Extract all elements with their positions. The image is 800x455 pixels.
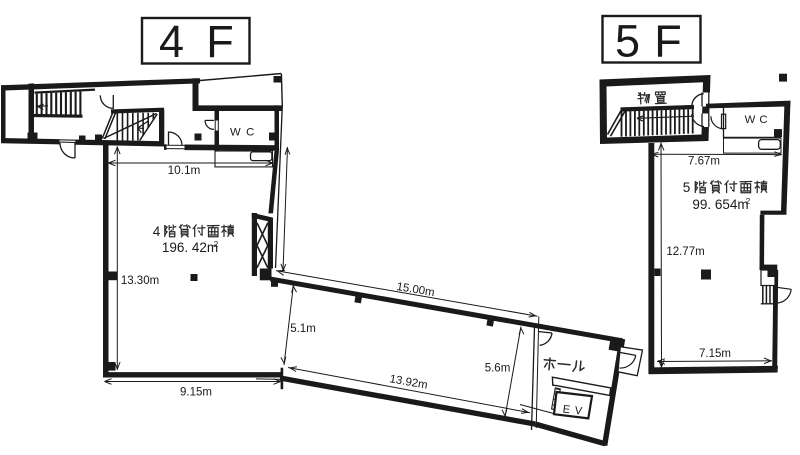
svg-text:F: F bbox=[206, 16, 234, 67]
svg-text:196. 42m: 196. 42m bbox=[162, 240, 218, 255]
svg-text:4: 4 bbox=[159, 16, 184, 67]
svg-text:4: 4 bbox=[153, 224, 161, 239]
svg-text:C: C bbox=[759, 114, 767, 126]
svg-text:2: 2 bbox=[214, 240, 219, 249]
svg-text:9.15m: 9.15m bbox=[180, 387, 212, 399]
svg-text:5.1m: 5.1m bbox=[290, 323, 316, 335]
svg-text:7.67m: 7.67m bbox=[688, 155, 720, 167]
svg-text:99. 654m: 99. 654m bbox=[692, 197, 748, 212]
svg-text:7.15m: 7.15m bbox=[699, 348, 731, 360]
svg-text:W: W bbox=[745, 114, 756, 126]
svg-text:5.6m: 5.6m bbox=[485, 363, 511, 375]
svg-text:12.77m: 12.77m bbox=[666, 246, 704, 258]
svg-text:5: 5 bbox=[615, 16, 640, 67]
svg-text:F: F bbox=[654, 16, 682, 67]
svg-text:5: 5 bbox=[683, 180, 691, 195]
svg-text:C: C bbox=[246, 126, 254, 138]
svg-text:10.1m: 10.1m bbox=[168, 163, 201, 177]
svg-text:E: E bbox=[562, 403, 571, 416]
svg-text:2: 2 bbox=[746, 197, 751, 206]
svg-text:13.30m: 13.30m bbox=[121, 275, 159, 287]
svg-text:W: W bbox=[230, 126, 241, 138]
